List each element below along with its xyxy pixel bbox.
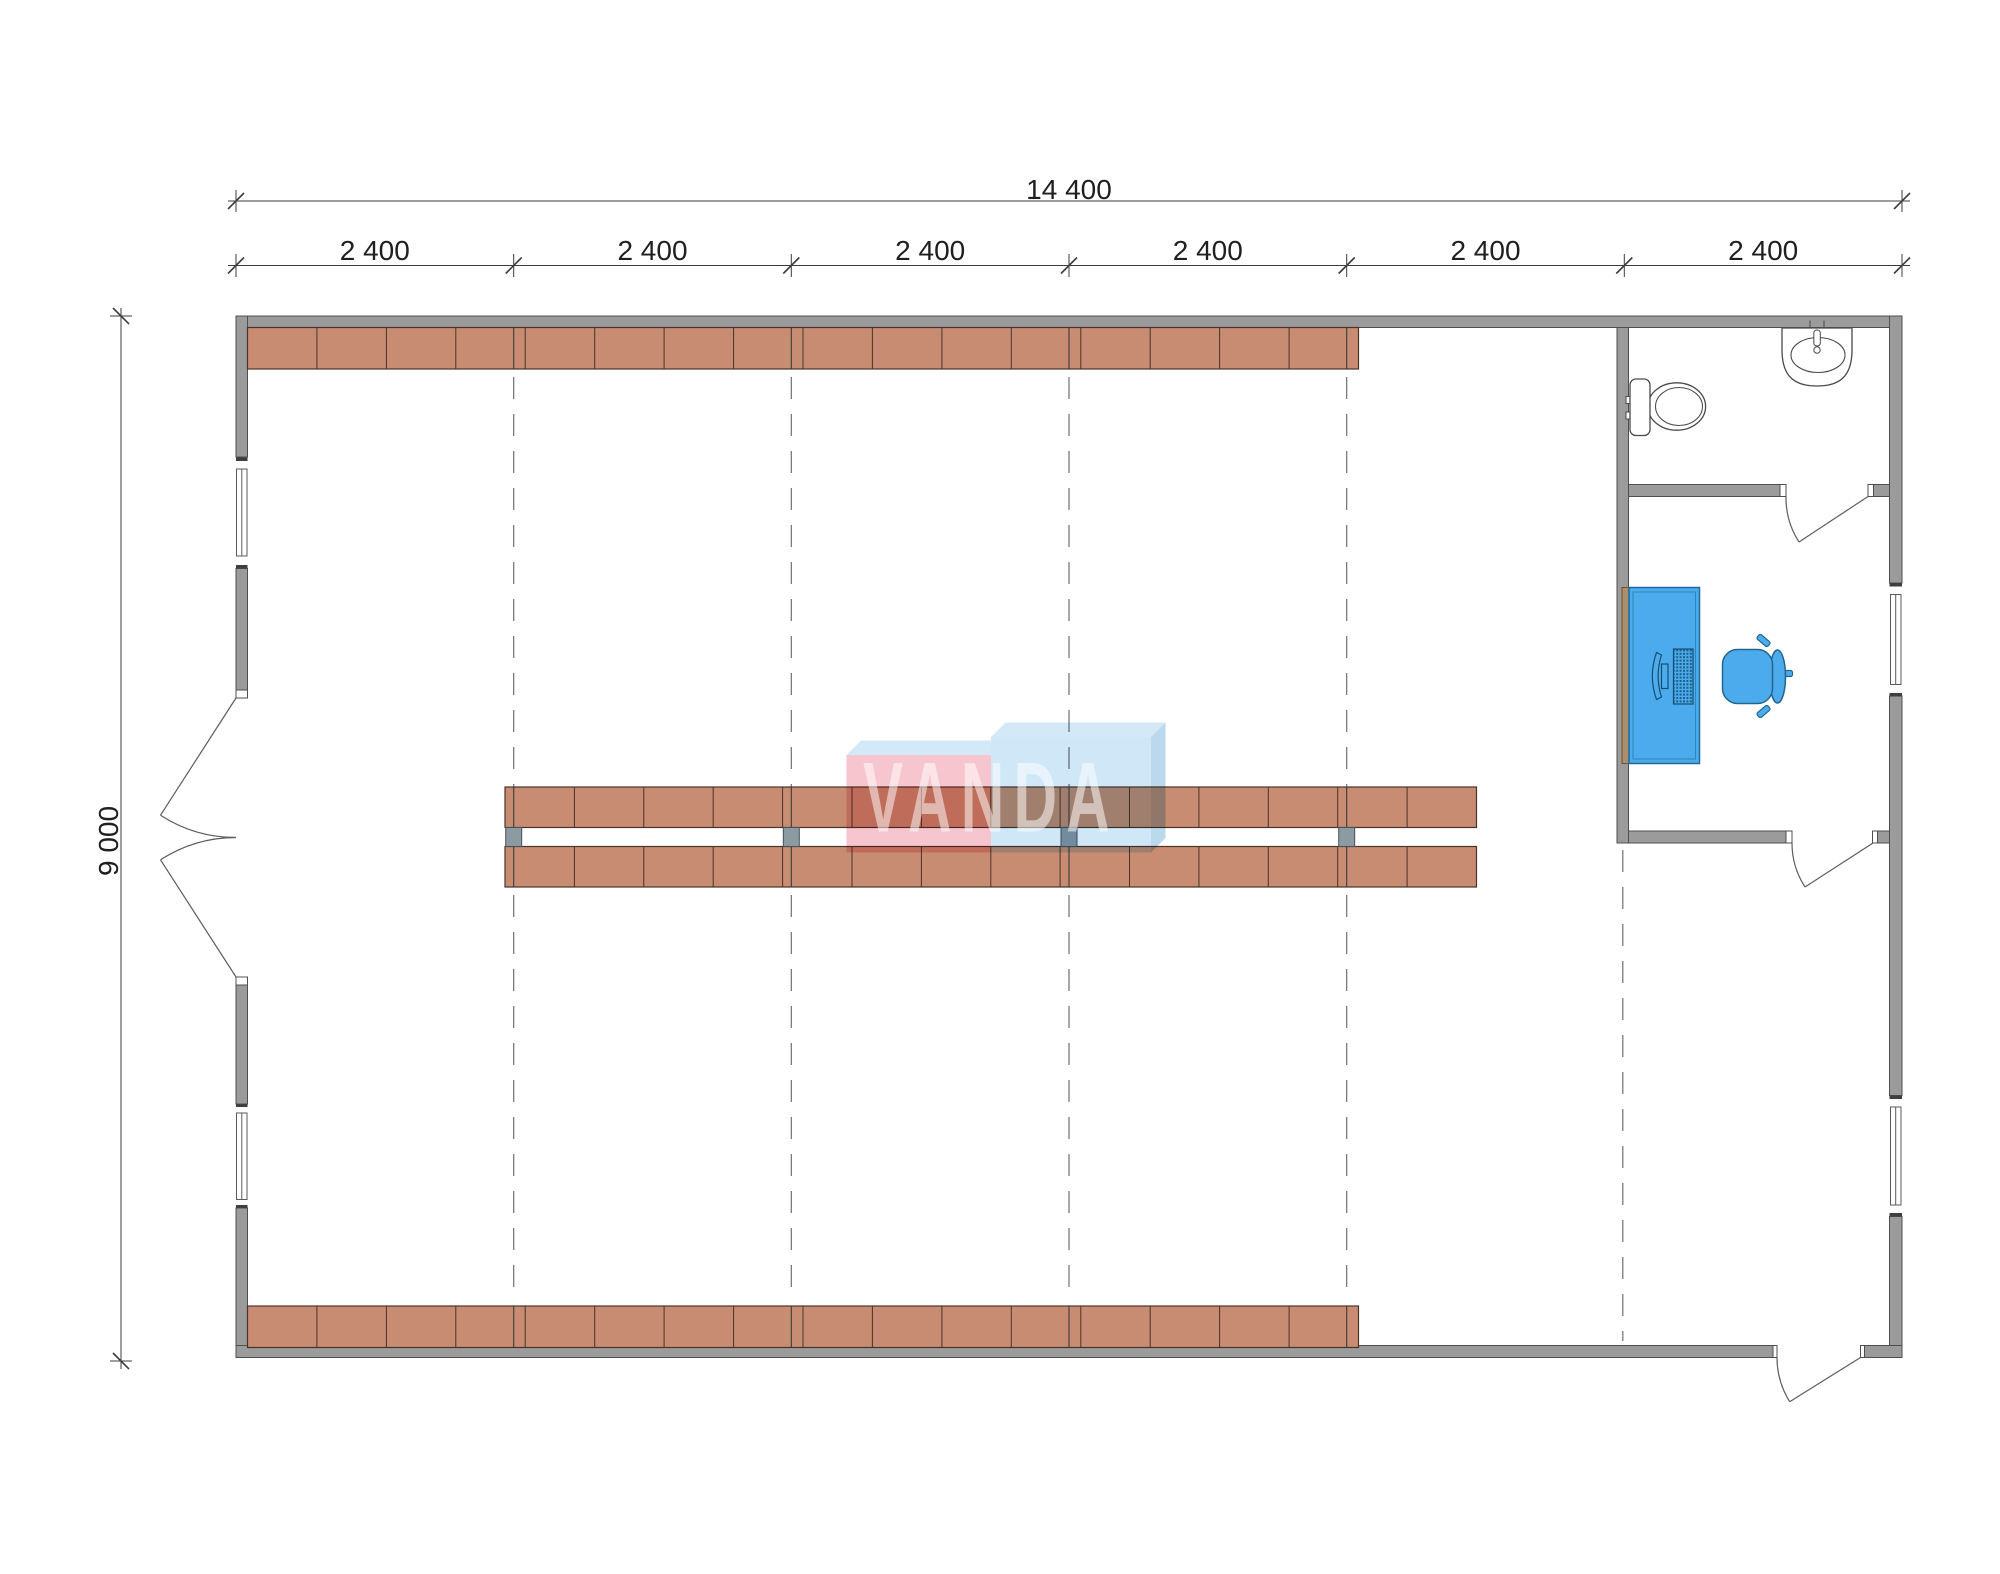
svg-text:2 400: 2 400 [1728,235,1798,266]
svg-text:VANDA: VANDA [863,743,1119,853]
svg-text:2 400: 2 400 [1173,235,1243,266]
svg-text:14 400: 14 400 [1026,174,1112,205]
svg-text:2 400: 2 400 [617,235,687,266]
svg-text:2 400: 2 400 [340,235,410,266]
svg-text:9 000: 9 000 [93,806,124,876]
svg-text:2 400: 2 400 [1450,235,1520,266]
svg-text:2 400: 2 400 [895,235,965,266]
